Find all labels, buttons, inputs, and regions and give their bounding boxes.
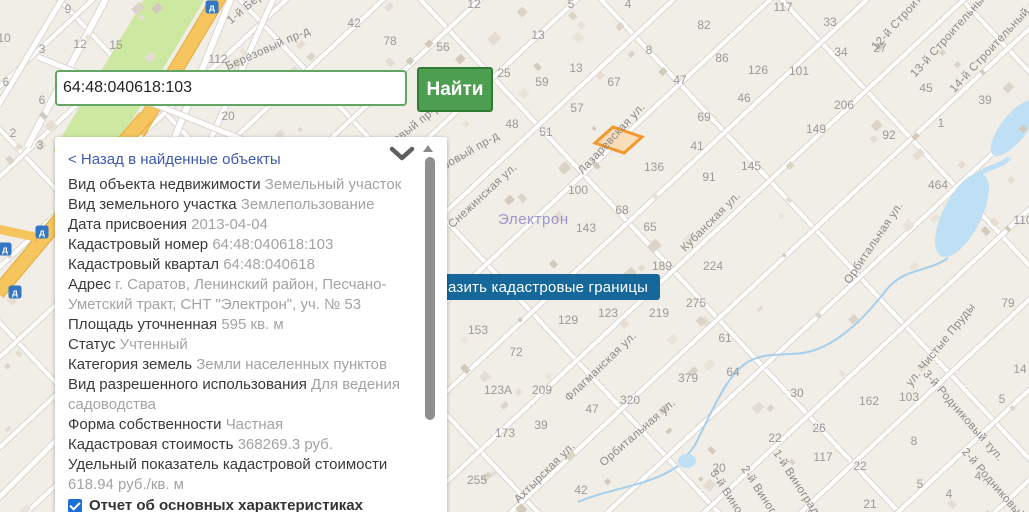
plot-number: 110 bbox=[1013, 213, 1029, 227]
bus-stop-icon: д bbox=[36, 226, 49, 239]
plot-number: 56 bbox=[436, 40, 449, 54]
plot-number: 136 bbox=[644, 160, 664, 174]
plot-number: 123 bbox=[598, 306, 618, 320]
plot-number: 92 bbox=[882, 128, 895, 142]
plot-number: 41 bbox=[690, 139, 703, 153]
attribute-label: Дата присвоения bbox=[68, 216, 191, 233]
plot-number: 103 bbox=[899, 390, 919, 404]
attribute-list: Вид объекта недвижимости Земельный участ… bbox=[68, 175, 434, 495]
attribute-label: Кадастровая стоимость bbox=[68, 436, 238, 453]
attribute-label: Вид разрешенного использования bbox=[68, 376, 311, 393]
plot-number: 30 bbox=[790, 386, 803, 400]
attribute-value: 618.94 руб./кв. м bbox=[68, 476, 184, 493]
attribute-label: Вид объекта недвижимости bbox=[68, 176, 265, 193]
bus-stop-icon: д bbox=[9, 286, 22, 299]
plot-number: 22 bbox=[853, 459, 866, 473]
plot-number: 224 bbox=[703, 259, 723, 273]
plot-number: 12 bbox=[73, 37, 86, 51]
plot-number: 57 bbox=[570, 101, 583, 115]
attribute-label: Кадастровый номер bbox=[68, 236, 212, 253]
plot-number: 25 bbox=[497, 66, 510, 80]
attribute-label: Вид земельного участка bbox=[68, 196, 241, 213]
plot-number: 5 bbox=[917, 477, 924, 491]
plot-number: 42 bbox=[347, 16, 360, 30]
show-boundaries-button[interactable]: азить кадастровые границы bbox=[436, 274, 660, 300]
plot-number: 3 bbox=[39, 42, 46, 56]
plot-number: 6 bbox=[39, 93, 46, 107]
attribute-value: 64:48:040618:103 bbox=[212, 236, 333, 253]
plot-number: 79 bbox=[1001, 296, 1014, 310]
plot-number: 46 bbox=[737, 91, 750, 105]
attribute-row: Статус Учтенный bbox=[68, 335, 434, 355]
district-label: Электрон bbox=[498, 211, 569, 228]
plot-number: 67 bbox=[607, 75, 620, 89]
plot-number: 189 bbox=[652, 259, 672, 273]
plot-number: 153 bbox=[468, 323, 488, 337]
plot-number: 59 bbox=[535, 75, 548, 89]
attribute-value: 64:48:040618 bbox=[223, 256, 315, 273]
attribute-row: Площадь уточненная 595 кв. м bbox=[68, 315, 434, 335]
plot-number: 209 bbox=[532, 383, 552, 397]
plot-number: 4 bbox=[625, 0, 632, 11]
plot-number: 13 bbox=[569, 61, 582, 75]
plot-number: 379 bbox=[678, 371, 698, 385]
plot-number: 8 bbox=[646, 43, 653, 57]
attribute-value: Землепользование bbox=[241, 196, 375, 213]
plot-number: 34 bbox=[834, 45, 847, 59]
plot-number: 64 bbox=[726, 365, 739, 379]
plot-number: 3 bbox=[37, 138, 44, 152]
attribute-row: Кадастровая стоимость 368269.3 руб. bbox=[68, 435, 434, 455]
plot-number: 61 bbox=[718, 331, 731, 345]
plot-number: 206 bbox=[834, 98, 854, 112]
plot-number: 42 bbox=[574, 483, 587, 497]
plot-number: 464 bbox=[928, 178, 948, 192]
report-checkbox[interactable] bbox=[68, 499, 82, 512]
plot-number: 82 bbox=[697, 18, 710, 32]
plot-number: 162 bbox=[859, 394, 879, 408]
attribute-row: Адрес г. Саратов, Ленинский район, Песча… bbox=[68, 275, 434, 315]
plot-number: 14 bbox=[1013, 362, 1026, 376]
plot-number: 47 bbox=[673, 73, 686, 87]
plot-number: 47 bbox=[585, 402, 598, 416]
attribute-label: Категория земель bbox=[68, 356, 196, 373]
report-checkbox-label: Отчет об основных характеристиках bbox=[89, 497, 363, 512]
plot-number: 9 bbox=[65, 2, 72, 16]
attribute-row: Удельный показатель кадастровой стоимост… bbox=[68, 455, 434, 495]
attribute-row: Кадастровый номер 64:48:040618:103 bbox=[68, 235, 434, 255]
plot-number: 275 bbox=[686, 296, 706, 310]
plot-number: 100 bbox=[568, 183, 588, 197]
bus-stop-icon: д bbox=[0, 243, 12, 256]
plot-number: 10 bbox=[0, 31, 11, 45]
attribute-row: Вид земельного участка Землепользование bbox=[68, 195, 434, 215]
plot-number: 68 bbox=[615, 203, 628, 217]
plot-number: 5 bbox=[568, 0, 575, 11]
plot-number: 1 bbox=[938, 116, 945, 130]
attribute-row: Категория земель Земли населенных пункто… bbox=[68, 355, 434, 375]
attribute-row: Форма собственности Частная bbox=[68, 415, 434, 435]
plot-number: 33 bbox=[823, 15, 836, 29]
attribute-row: Кадастровый квартал 64:48:040618 bbox=[68, 255, 434, 275]
plot-number: 13 bbox=[531, 28, 544, 42]
plot-number: 86 bbox=[715, 51, 728, 65]
plot-number: 20 bbox=[712, 461, 725, 475]
plot-number: 69 bbox=[697, 110, 710, 124]
plot-number: 2 bbox=[10, 126, 17, 140]
back-link[interactable]: < Назад в найденные объекты bbox=[68, 150, 281, 170]
plot-number: 126 bbox=[748, 63, 768, 77]
plot-number: 6 bbox=[3, 75, 10, 89]
plot-number: 117 bbox=[813, 450, 832, 464]
plot-number: 5 bbox=[999, 392, 1006, 406]
plot-number: 39 bbox=[534, 418, 547, 432]
plot-number: 12 bbox=[467, 0, 480, 11]
plot-number: 129 bbox=[558, 313, 578, 327]
plot-number: 78 bbox=[383, 34, 396, 48]
bus-stop-icon: д bbox=[206, 1, 219, 14]
plot-number: 15 bbox=[109, 38, 122, 52]
attribute-value: Частная bbox=[226, 416, 283, 433]
plot-number: 173 bbox=[495, 426, 515, 440]
search-input[interactable] bbox=[55, 70, 407, 106]
plot-number: 48 bbox=[505, 117, 518, 131]
find-button[interactable]: Найти bbox=[417, 67, 493, 112]
attribute-label: Адрес bbox=[68, 276, 115, 293]
plot-number: 51 bbox=[539, 125, 552, 139]
plot-number: 8 bbox=[911, 434, 918, 448]
plot-number: 20 bbox=[221, 109, 234, 123]
attribute-label: Статус bbox=[68, 336, 120, 353]
attribute-value: Земельный участок bbox=[265, 176, 402, 193]
plot-number: 4 bbox=[946, 487, 953, 501]
plot-number: 26 bbox=[812, 421, 825, 435]
plot-number: 219 bbox=[649, 306, 669, 320]
plot-number: 22 bbox=[768, 431, 781, 445]
plot-number: 143 bbox=[576, 221, 596, 235]
plot-number: 21 bbox=[863, 497, 876, 511]
plot-number: 72 bbox=[509, 345, 522, 359]
attribute-value: Учтенный bbox=[120, 336, 188, 353]
object-info-panel: < Назад в найденные объекты Вид объекта … bbox=[55, 137, 447, 512]
plot-number: 91 bbox=[702, 170, 715, 184]
attribute-value: 595 кв. м bbox=[221, 316, 283, 333]
plot-number: 149 bbox=[806, 122, 826, 136]
attribute-label: Удельный показатель кадастровой стоимост… bbox=[68, 456, 387, 473]
plot-number: 145 bbox=[741, 159, 761, 173]
attribute-label: Форма собственности bbox=[68, 416, 226, 433]
plot-number: 117 bbox=[773, 0, 792, 14]
attribute-row: Вид разрешенного использования Для веден… bbox=[68, 375, 434, 415]
plot-number: 112 bbox=[208, 52, 227, 66]
plot-number: 27 bbox=[873, 41, 886, 55]
plot-number: 39 bbox=[978, 93, 991, 107]
plot-number: 101 bbox=[789, 64, 809, 78]
plot-number: 123А bbox=[484, 383, 512, 397]
report-row: Отчет об основных характеристиках bbox=[68, 497, 363, 512]
attribute-row: Вид объекта недвижимости Земельный участ… bbox=[68, 175, 434, 195]
attribute-value: 368269.3 руб. bbox=[238, 436, 333, 453]
plot-number: 4 bbox=[975, 469, 982, 483]
plot-number: 65 bbox=[643, 220, 656, 234]
chevron-down-icon[interactable] bbox=[389, 146, 415, 162]
plot-number: 255 bbox=[467, 473, 487, 487]
attribute-value: 2013-04-04 bbox=[191, 216, 268, 233]
scroll-up-arrow[interactable] bbox=[423, 145, 433, 152]
attribute-value: Земли населенных пунктов bbox=[196, 356, 387, 373]
scrollbar-thumb[interactable] bbox=[425, 157, 435, 420]
attribute-value: г. Саратов, Ленинский район, Песчано-Уме… bbox=[68, 276, 387, 313]
attribute-label: Площадь уточненная bbox=[68, 316, 221, 333]
plot-number: 320 bbox=[620, 393, 640, 407]
screenshot: 1-й Берёзовый пр-дБерёзовый пр-дБерёзовы… bbox=[0, 0, 1029, 512]
attribute-label: Кадастровый квартал bbox=[68, 256, 223, 273]
attribute-row: Дата присвоения 2013-04-04 bbox=[68, 215, 434, 235]
plot-number: 45 bbox=[919, 81, 932, 95]
